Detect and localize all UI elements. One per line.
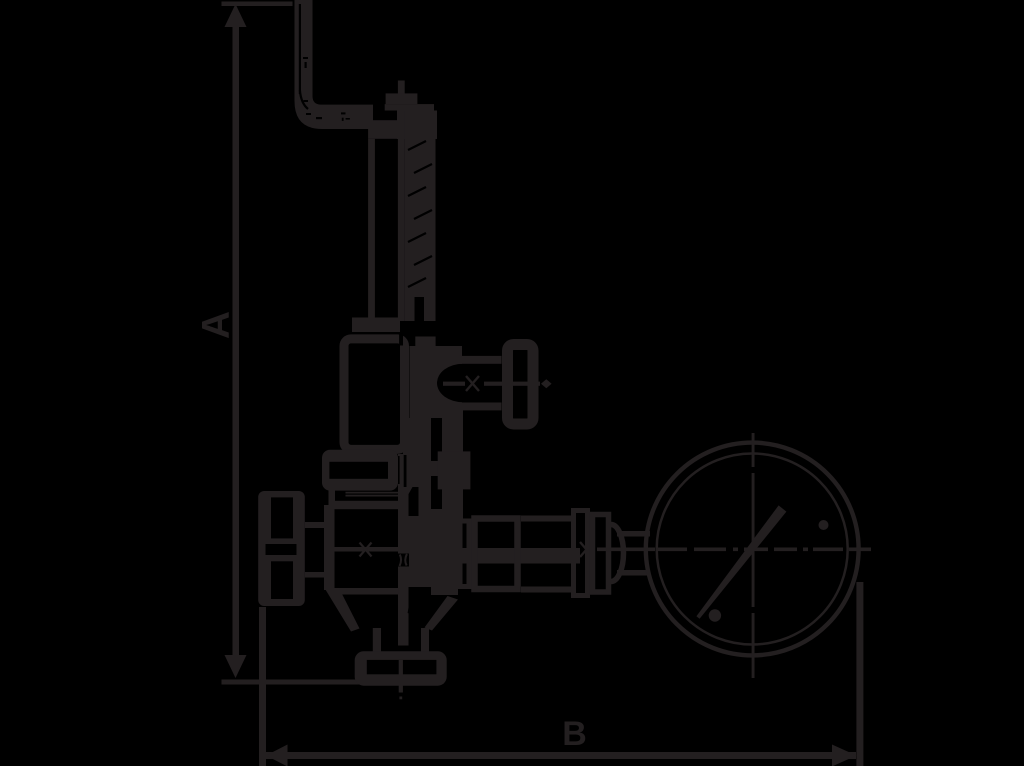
svg-text:B: B <box>562 715 587 753</box>
svg-text:A: A <box>195 311 238 339</box>
